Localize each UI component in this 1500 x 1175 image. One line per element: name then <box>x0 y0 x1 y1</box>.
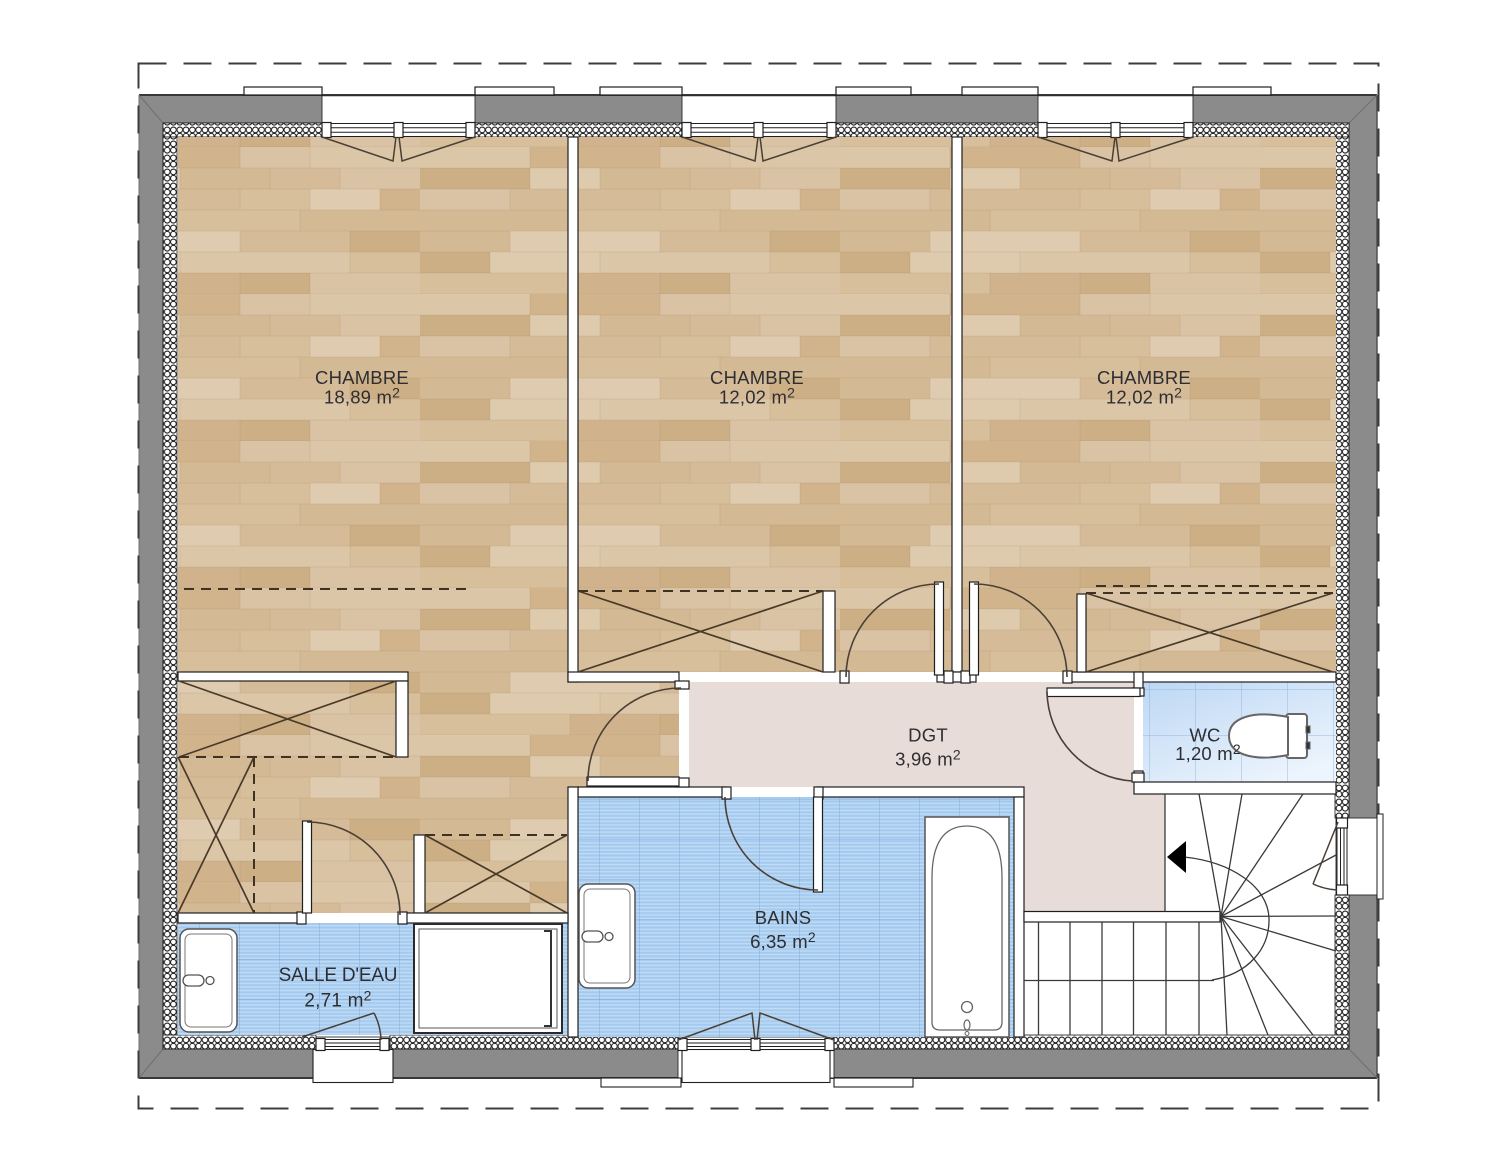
svg-text:12,02 m2: 12,02 m2 <box>1106 385 1182 408</box>
svg-text:12,02 m2: 12,02 m2 <box>719 385 795 408</box>
svg-text:6,35 m2: 6,35 m2 <box>750 929 816 952</box>
svg-text:1,20 m2: 1,20 m2 <box>1175 741 1241 764</box>
svg-text:BAINS: BAINS <box>755 907 812 928</box>
svg-text:18,89 m2: 18,89 m2 <box>324 385 400 408</box>
svg-text:DGT: DGT <box>908 725 948 746</box>
svg-text:2,71 m2: 2,71 m2 <box>304 988 371 1012</box>
svg-text:3,96 m2: 3,96 m2 <box>895 747 961 770</box>
svg-text:SALLE D'EAU: SALLE D'EAU <box>279 965 398 986</box>
